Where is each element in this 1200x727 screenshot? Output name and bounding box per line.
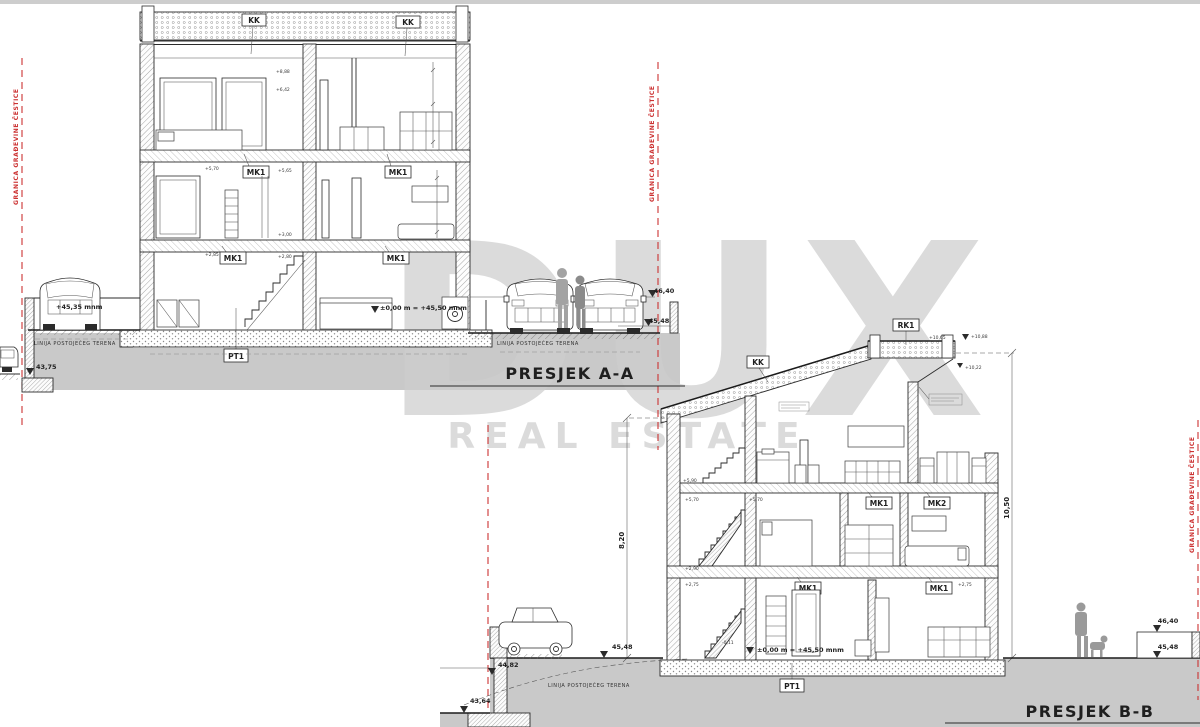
level-marker-icon xyxy=(460,706,468,713)
washing-machine-icon xyxy=(442,297,468,329)
building-b-ground-floor: MK1 MK1 +2,90 +2,75 +2,75 -0,1 xyxy=(685,566,990,660)
dimension-right-10-50: 10,50 xyxy=(1003,349,1016,662)
tag-mk2: MK2 xyxy=(928,499,947,508)
level-45-48-b-left: 45,48 xyxy=(612,643,633,651)
level-45-48-b-right: 45,48 xyxy=(1158,643,1179,651)
tag-mk1: MK1 xyxy=(387,254,406,263)
terrain-label-a-right: LINIJA POSTOJEĆEG TERENA xyxy=(497,340,579,347)
micro-level: +5,70 xyxy=(205,166,219,172)
section-b-title: PRESJEK B-B xyxy=(1026,702,1155,721)
tag-kk: KK xyxy=(402,18,415,27)
level-zero-a: ±0,00 m = +45,50 mnm xyxy=(380,304,467,312)
tag-kk: KK xyxy=(248,16,261,25)
blueprint-page: DUX REAL ESTATE GRANICA GRAĐEVINE ČESTIC… xyxy=(0,0,1200,727)
micro-level: -0,11 xyxy=(722,640,734,646)
level-roof-peak: +10,88 xyxy=(971,334,988,340)
micro-level: +5,65 xyxy=(278,168,292,174)
micro-level: +5,70 xyxy=(749,497,763,503)
level-roof-left: +10,65 xyxy=(929,335,946,341)
level-46-40-a: 46,40 xyxy=(654,287,675,295)
building-b-middle-floor: MK1 MK2 +5,70 +5,70 xyxy=(685,492,969,566)
terrain-label-b: LINIJA POSTOJEĆEG TERENA xyxy=(548,682,630,689)
staircase-a xyxy=(245,256,303,327)
tag-pt1: PT1 xyxy=(228,352,244,361)
micro-level: +2,90 xyxy=(685,566,699,572)
tag-kk: KK xyxy=(752,358,765,367)
level-43-64: 43,64 xyxy=(470,697,491,705)
boundary-label-right: GRANICA GRAĐEVINE ČESTICE xyxy=(649,85,656,202)
level-zero-b: ±0,00 m = +45,50 mnm xyxy=(757,646,844,654)
level-46-40-b: 46,40 xyxy=(1158,617,1179,625)
level-marker-icon xyxy=(600,651,608,658)
tag-mk1: MK1 xyxy=(870,499,889,508)
level-43-75: 43,75 xyxy=(36,363,57,371)
dim-10-50: 10,50 xyxy=(1003,497,1011,519)
sections-drawing: DUX REAL ESTATE GRANICA GRAĐEVINE ČESTIC… xyxy=(0,0,1200,727)
person-and-dog-figure xyxy=(1075,603,1108,658)
micro-level: +2,85 xyxy=(205,252,219,258)
level-marker-icon xyxy=(1153,625,1161,632)
tag-pt1: PT1 xyxy=(784,682,800,691)
micro-level: +2,80 xyxy=(278,254,292,260)
micro-level: +6,42 xyxy=(276,87,290,93)
tag-mk1: MK1 xyxy=(224,254,243,263)
micro-level: +2,75 xyxy=(685,582,699,588)
level-roof-eave: +10,22 xyxy=(965,365,982,371)
micro-level: +8,88 xyxy=(276,69,290,75)
car-rear-view: +45,35 mnm xyxy=(40,278,103,330)
tag-mk1: MK1 xyxy=(247,168,266,177)
micro-level: +5,90 xyxy=(683,478,697,484)
tag-mk1: MK1 xyxy=(930,584,949,593)
level-car-platform: +45,35 mnm xyxy=(56,303,103,311)
micro-level: +2,75 xyxy=(958,582,972,588)
level-44-82: 44,82 xyxy=(498,661,519,669)
tag-rk1: RK1 xyxy=(898,321,915,330)
page-top-strip xyxy=(0,0,1200,4)
micro-level: +5,70 xyxy=(685,497,699,503)
terrain-label-a-left: LINIJA POSTOJEĆEG TERENA xyxy=(34,340,116,347)
dim-8-20: 8,20 xyxy=(618,532,626,549)
car-side-view xyxy=(499,608,572,655)
boundary-pillar xyxy=(670,302,678,333)
boundary-label-b-right: GRANICA GRAĐEVINE ČESTICE xyxy=(1189,436,1196,553)
tag-mk1: MK1 xyxy=(389,168,408,177)
micro-level: +3,00 xyxy=(278,232,292,238)
car-partial-left xyxy=(0,347,20,380)
section-a-title: PRESJEK A-A xyxy=(505,364,634,383)
level-45-48-a: 45,48 xyxy=(649,317,670,325)
boundary-label-left: GRANICA GRAĐEVINE ČESTICE xyxy=(13,88,20,205)
